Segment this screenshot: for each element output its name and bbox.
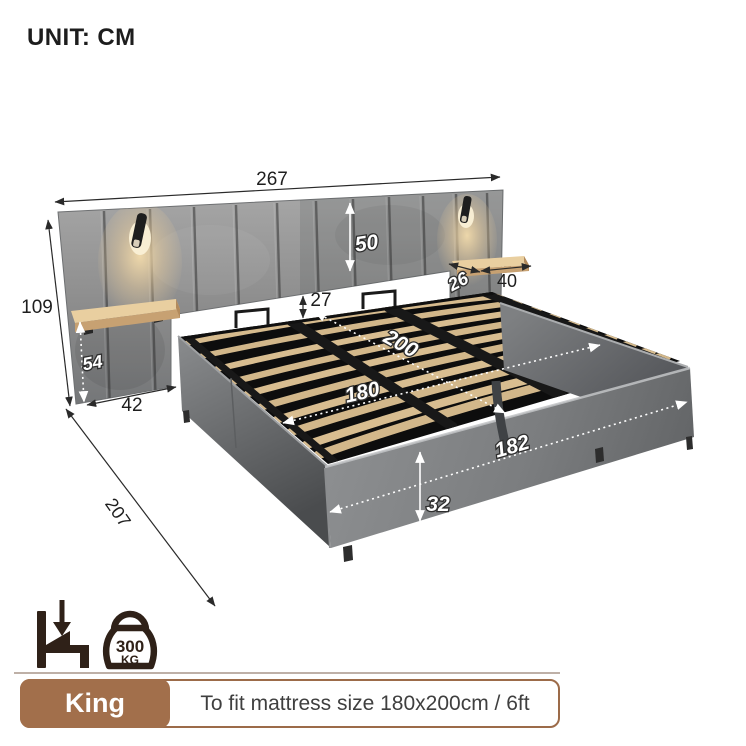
dim-label-40: 40	[497, 271, 517, 291]
mattress-fit-bar: King To fit mattress size 180x200cm / 6f…	[20, 679, 560, 728]
kettlebell-weight-icon: 300 KG	[106, 614, 154, 667]
dim-label-54: 54	[81, 351, 104, 374]
dim-label-267: 267	[256, 169, 288, 190]
dim-label-27: 27	[310, 290, 331, 311]
dim-headboard-gap: 27	[303, 290, 332, 318]
diagram-svg: 267 109 42 27 26 40	[0, 0, 746, 746]
bed-base	[178, 291, 694, 562]
dim-label-50: 50	[353, 230, 380, 256]
bed-dimension-diagram: UNIT: CM	[0, 0, 746, 746]
lift-handle-right	[363, 291, 395, 309]
dim-label-207: 207	[101, 495, 135, 531]
dim-label-109: 109	[21, 297, 53, 318]
dim-label-42: 42	[121, 395, 142, 416]
bed-mattress-drop-icon	[37, 600, 89, 668]
mattress-fit-text: To fit mattress size 180x200cm / 6ft	[172, 681, 558, 726]
max-load-unit: KG	[121, 653, 139, 667]
footer-divider	[14, 672, 560, 674]
dim-label-32: 32	[426, 493, 450, 516]
feature-icons: 300 KG	[37, 600, 154, 668]
dim-total-length: 207	[66, 409, 215, 606]
size-badge: King	[20, 679, 170, 728]
